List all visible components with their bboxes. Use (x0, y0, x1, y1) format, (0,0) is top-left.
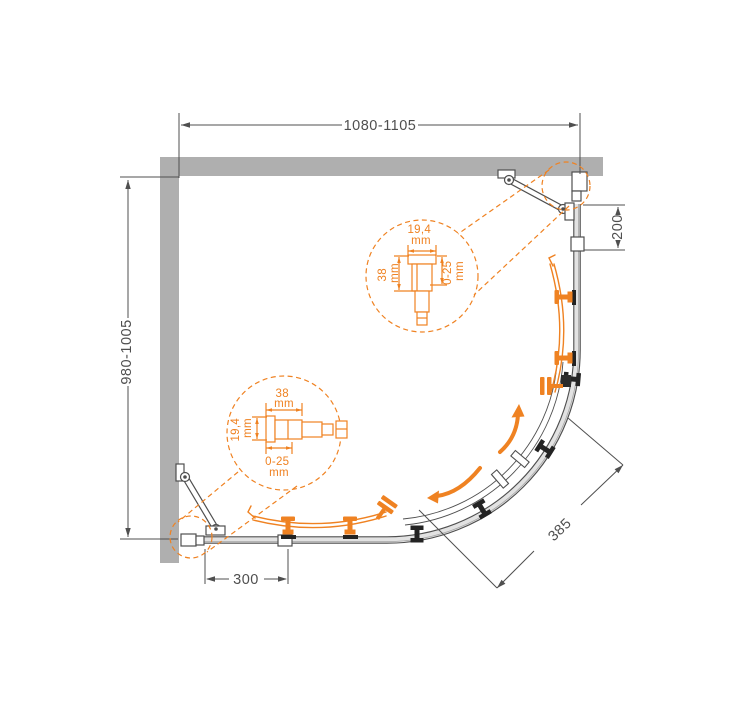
wall-profile-right-foot (572, 191, 581, 201)
wall-top (160, 157, 603, 176)
door-arc-inner (403, 364, 557, 519)
brace-bl-bar (183, 476, 219, 531)
walls (160, 157, 603, 563)
brace-bl-pin-wall (184, 476, 186, 478)
detail-bottom-profile (266, 416, 347, 442)
arrowhead (255, 418, 259, 424)
door-bottom-hook (248, 506, 255, 518)
roller-orange (555, 351, 573, 365)
door-rollers-black (281, 290, 581, 543)
detail-top-width-label: 19,4 mm (407, 224, 434, 247)
arrowhead (278, 576, 287, 581)
dim-label-right: 200 (610, 214, 626, 240)
detail-bottom-depth-label: 19,4 mm (230, 414, 254, 441)
detail-top-adjust-label: 0-25 mm (442, 257, 466, 285)
motion-arrow-curve (500, 414, 518, 452)
arrowhead (430, 249, 436, 253)
glass-connector-right (571, 237, 584, 251)
brace-tr-bar (508, 178, 565, 212)
arrowhead (569, 122, 578, 127)
ext-line (252, 417, 267, 440)
ext-line (419, 510, 497, 588)
roller-orange (555, 290, 573, 304)
wall-profiles (181, 172, 587, 546)
leader-line (458, 170, 549, 234)
arrowhead (397, 257, 401, 263)
dim-label-top: 1080-1105 (344, 118, 417, 134)
shower-enclosure-plan: 1080-1105 980-1005 200 300 385 (0, 0, 750, 713)
roller-base (572, 290, 576, 305)
arrowhead (125, 180, 130, 189)
plan-drawing: 1080-1105 980-1005 200 300 385 (0, 0, 750, 713)
brace-tr-pin-glass (562, 208, 564, 210)
arrowhead (181, 122, 190, 127)
arrowhead (125, 528, 130, 537)
callout-strokes (170, 162, 590, 558)
wall-profile-right (572, 172, 587, 191)
rail-outline (203, 204, 580, 543)
dim-label-bottom: 300 (233, 572, 259, 588)
brace-tr-glass-clamp (565, 203, 574, 220)
rail-band (203, 204, 579, 542)
detail-top-profile (408, 255, 436, 325)
detail-bottom-adjust-label: 0-25 mm (265, 456, 293, 479)
dimension-labels: 1080-1105 980-1005 200 300 385 (119, 118, 626, 588)
dim-label-curve: 385 (545, 515, 575, 544)
arrowhead (266, 408, 272, 412)
dimension-arrows (125, 122, 623, 588)
door-stile (511, 451, 529, 468)
dim-label-left: 980-1005 (119, 319, 135, 384)
arrowhead (615, 207, 620, 215)
ext-line (568, 418, 623, 465)
detail-top-depth-label: 38 mm (377, 263, 401, 283)
arrowhead (255, 433, 259, 439)
wall-profile-bottom (181, 534, 196, 546)
arrowhead (266, 446, 272, 450)
rail-track-line (203, 204, 579, 542)
arrowhead (615, 240, 620, 248)
door-handle-orange (540, 377, 563, 395)
detail-bottom-width-label: 38 mm (274, 388, 294, 410)
arrowhead (286, 446, 292, 450)
roller-base (572, 351, 576, 366)
arrowhead (408, 249, 414, 253)
motion-arrow-curve (437, 468, 480, 496)
brace-bl-pin-glass (215, 528, 217, 530)
roller-base (281, 535, 296, 539)
wall-left (160, 157, 179, 563)
rail-outer (203, 204, 580, 543)
arrowhead (397, 284, 401, 290)
roller-base (343, 535, 358, 539)
wall-profile-bottom-foot (196, 536, 204, 545)
brace-tr-pin-wall (508, 179, 510, 181)
arrowhead (296, 408, 302, 412)
door-hardware-orange (281, 290, 573, 535)
support-braces (176, 170, 574, 535)
arrowhead (206, 576, 215, 581)
